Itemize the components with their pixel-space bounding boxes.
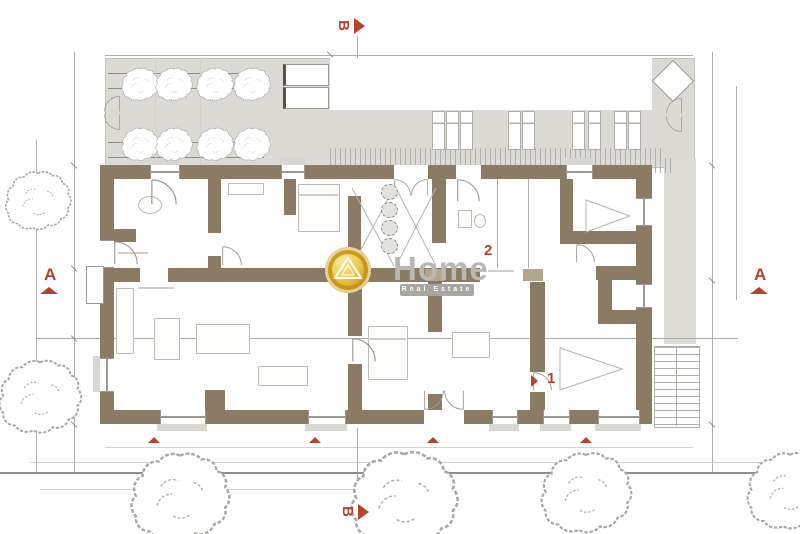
tree-sketch (234, 126, 270, 162)
sofa-sketch (258, 366, 308, 386)
door-swing (666, 98, 682, 114)
window-sill (489, 424, 519, 431)
section-marker-b-bottom: B (340, 506, 355, 517)
door-opening (424, 410, 464, 424)
tree-sketch (132, 448, 228, 534)
section-marker-b-top: B (336, 20, 351, 31)
unit-label-1: 1 (547, 371, 555, 386)
wall-segment (348, 364, 362, 424)
staircase (654, 346, 700, 428)
entry-marker-icon (309, 437, 321, 443)
sun-lounger (460, 111, 473, 150)
entry-bay (86, 266, 104, 304)
side-path (664, 158, 696, 344)
door-swing (444, 390, 464, 410)
sun-lounger (446, 111, 459, 150)
section-marker-a-right: A (754, 266, 766, 283)
door-swing (666, 116, 682, 132)
door-swing (114, 241, 138, 265)
tree-sketch (156, 126, 192, 162)
section-arrow-icon (354, 18, 365, 34)
window (598, 410, 640, 424)
sun-lounger (588, 111, 601, 150)
door-swing (352, 338, 376, 362)
tree-sketch (542, 448, 630, 534)
wall-segment (168, 268, 222, 282)
deck-hatching (650, 158, 672, 173)
sun-lounger (628, 111, 641, 150)
deck-hatching (330, 148, 664, 166)
wall-segment (530, 282, 545, 372)
dimension-line (105, 55, 693, 56)
entry-arrow-icon (531, 375, 538, 387)
tree-sketch (122, 126, 158, 162)
window (636, 284, 652, 308)
bath-fixture-sketch (474, 214, 486, 228)
tree-sketch (748, 448, 800, 532)
terrace-planter (283, 87, 329, 109)
sun-lounger (508, 111, 521, 150)
tree-sketch (197, 126, 233, 162)
dimension-line (712, 52, 713, 472)
window (566, 165, 593, 179)
door-swing (424, 390, 444, 410)
section-marker-a-left: A (44, 266, 56, 283)
wall-segment (284, 179, 296, 215)
tree-sketch (6, 168, 70, 232)
wall-segment (598, 310, 652, 324)
dining-table-sketch (196, 324, 250, 354)
window-sill (279, 158, 305, 165)
section-line-b (357, 36, 358, 58)
tree-sketch (122, 66, 158, 102)
bush-sketch (381, 184, 398, 200)
wall-segment (208, 179, 221, 233)
triangle-sketch (558, 346, 624, 392)
table-sketch (452, 332, 490, 358)
window (492, 410, 518, 424)
tree-sketch (234, 66, 270, 102)
door-swing (104, 114, 120, 130)
window (160, 410, 206, 424)
partition-line (528, 179, 529, 268)
room-label-scribble (488, 270, 514, 272)
section-arrow-icon (40, 287, 58, 294)
tree-sketch (352, 446, 456, 534)
window (100, 358, 114, 392)
room-label-scribble (138, 287, 174, 289)
entry-marker-icon (148, 437, 160, 443)
door-swing (104, 96, 120, 112)
bush-sketch (381, 220, 398, 236)
window-sill (540, 424, 571, 431)
pyramid-icon (334, 257, 362, 279)
bush-sketch (381, 202, 398, 218)
terrace-planter (283, 64, 329, 86)
window (543, 410, 570, 424)
door-swing (411, 179, 428, 196)
door-swing (457, 179, 480, 202)
window-sill (93, 356, 100, 392)
wall-pilaster (205, 390, 225, 410)
sun-lounger (614, 111, 627, 150)
tree-sketch (156, 66, 192, 102)
door-opening (100, 240, 114, 268)
kitchen-counter-sketch (116, 288, 134, 354)
wardrobe-sketch (228, 183, 264, 195)
sun-lounger (572, 111, 585, 150)
wall-infill (523, 269, 543, 281)
door-swing (576, 244, 595, 263)
window (150, 165, 180, 179)
tree-sketch (0, 356, 80, 436)
staircase-rail (676, 346, 677, 426)
canopy-area (330, 58, 652, 110)
bed-pillow-line (298, 194, 338, 196)
bath-fixture-sketch (458, 210, 472, 228)
entry-marker-icon (580, 437, 592, 443)
door-swing (151, 179, 177, 205)
window-sill (564, 158, 593, 165)
partition-line (497, 179, 498, 268)
floor-plan-canvas: A A B B 2 1 Home Real Estate (0, 0, 800, 534)
triangle-sketch (584, 198, 632, 234)
kitchen-island-sketch (154, 318, 180, 360)
window-sill (305, 424, 347, 431)
dimension-line (736, 86, 737, 300)
brand-tagline: Real Estate (400, 284, 474, 296)
section-arrow-icon (750, 287, 768, 294)
window (636, 198, 652, 226)
window-sill (157, 424, 207, 431)
door-swing (222, 246, 242, 266)
brand-name: Home (393, 252, 489, 285)
window (281, 165, 305, 179)
sun-lounger (522, 111, 535, 150)
wall-segment (114, 268, 140, 282)
section-arrow-icon (358, 504, 369, 520)
bed-sketch (298, 184, 340, 232)
door-opening (394, 165, 428, 179)
sun-lounger (432, 111, 445, 150)
window (308, 410, 346, 424)
entry-marker-icon (427, 437, 439, 443)
window-sill (595, 424, 641, 431)
door-opening (456, 165, 481, 179)
tree-sketch (197, 66, 233, 102)
